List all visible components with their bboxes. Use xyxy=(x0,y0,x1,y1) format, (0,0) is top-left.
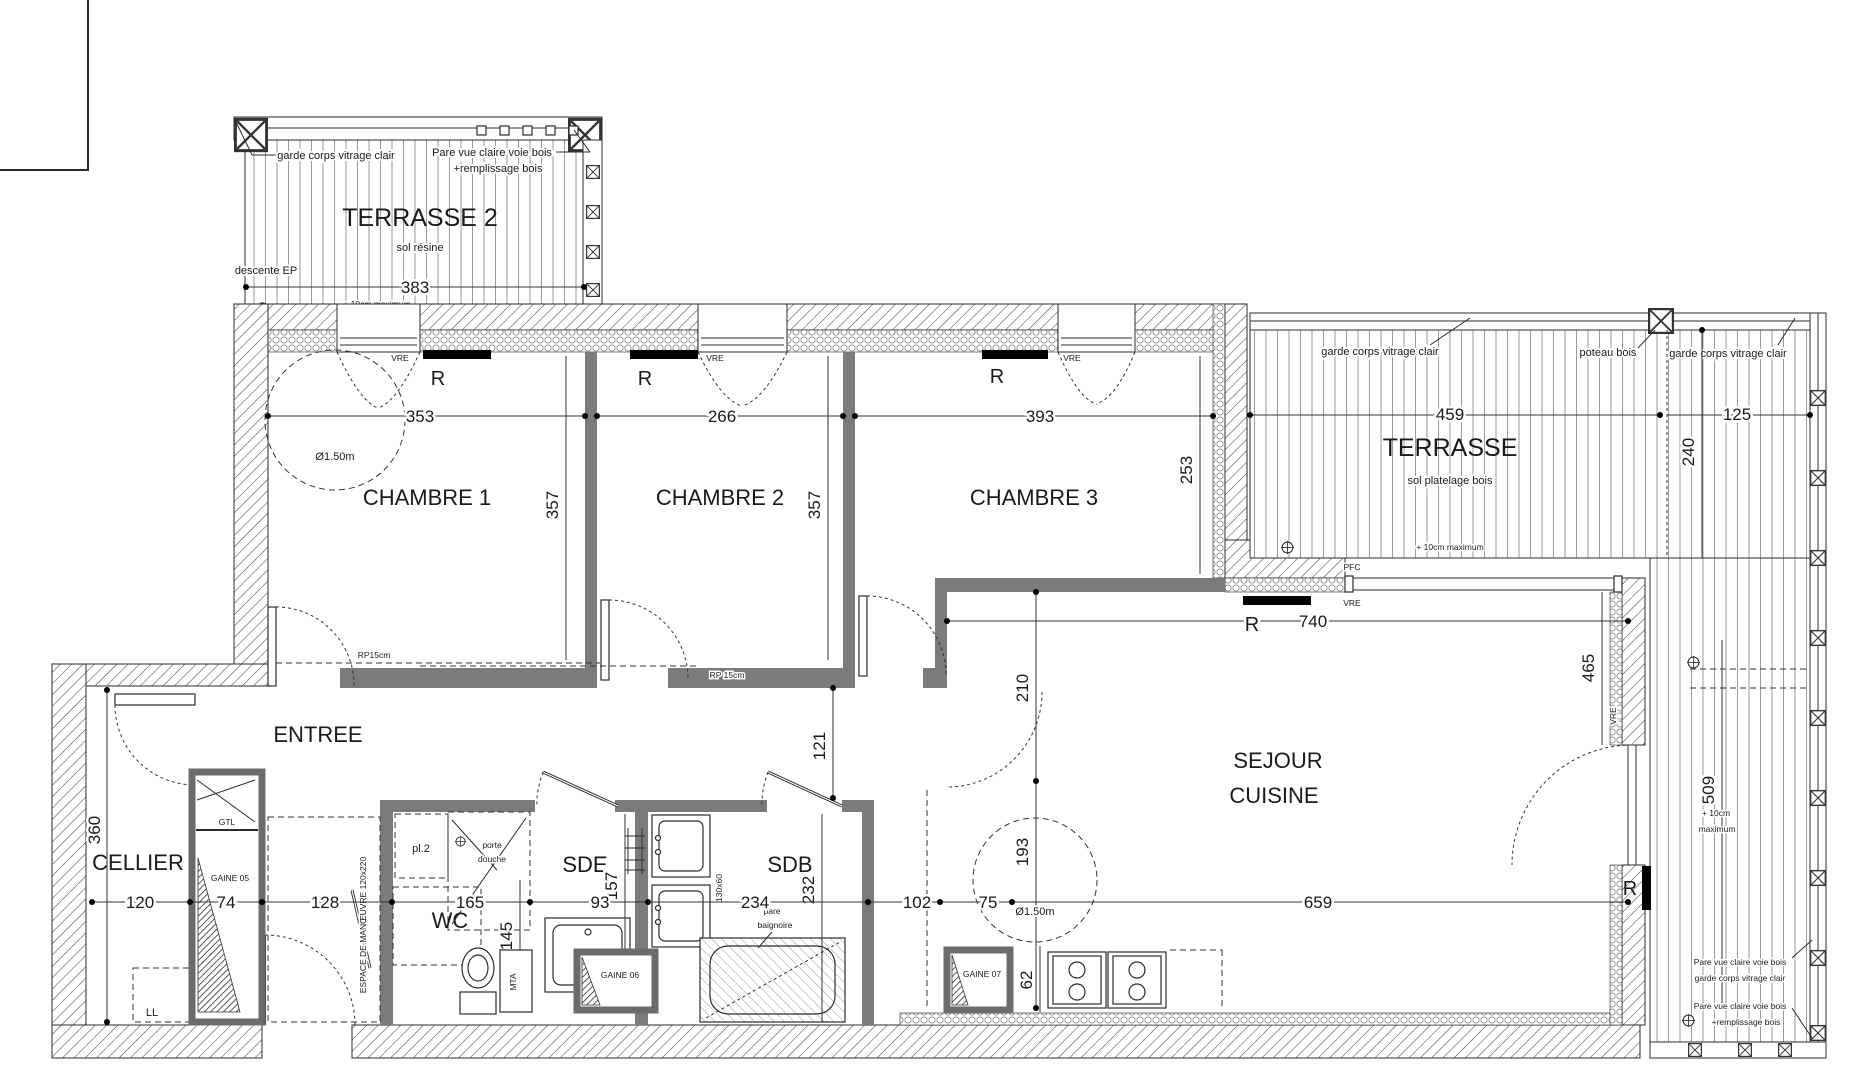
room-chambre1: Ø1.50m 353 CHAMBRE 1 357 xyxy=(265,350,588,660)
annotation-pfc: PFC xyxy=(1344,562,1361,572)
radiator-sejour-north xyxy=(1243,596,1311,605)
dim-terrasse-width: 459 xyxy=(1436,405,1464,424)
dim-terrasse2-width: 383 xyxy=(401,278,429,297)
annotation-rp15: RP15cm xyxy=(358,650,391,660)
dim-terrace-strip-depth: 509 xyxy=(1699,776,1718,804)
sejour-label1: SEJOUR xyxy=(1233,748,1322,773)
radiator-r-ch3: R xyxy=(990,366,1004,388)
dim-sejour-bay: 740 xyxy=(1299,612,1327,631)
door-cellier xyxy=(115,694,195,785)
mta-label: MTA xyxy=(508,973,518,991)
dim-chain-6: 102 xyxy=(903,893,931,912)
dim-chain-1: 74 xyxy=(217,893,236,912)
terrasse-floor-label: sol platelage bois xyxy=(1407,475,1493,487)
dim-chambre3-depth: 253 xyxy=(1177,456,1196,484)
pl2-label: pl.2 xyxy=(412,843,430,855)
door-terrasse-east xyxy=(1512,745,1636,865)
dim-wc-depth: 145 xyxy=(497,922,516,950)
circle-label-ch1: Ø1.50m xyxy=(315,451,354,463)
gaine07: GAINE 07 xyxy=(947,950,1010,1010)
annotation-garde-corps-t2: garde corps vitrage clair xyxy=(277,150,395,162)
dimension-chain: 120 74 128 165 93 234 102 75 659 xyxy=(89,893,1631,912)
dim-chain-4: 93 xyxy=(591,893,610,912)
ll-label: LL xyxy=(146,1007,158,1019)
terrasse-label: TERRASSE xyxy=(1383,434,1518,462)
dim-chain-8: 659 xyxy=(1304,893,1332,912)
sdb-label: SDB xyxy=(767,852,812,877)
sde-label: SDE xyxy=(562,852,607,877)
gaine06-label: GAINE 06 xyxy=(601,970,640,980)
gtl-label: GTL xyxy=(219,817,236,827)
kitchen-units xyxy=(1048,952,1166,1008)
annotation-pare-vue-t2: Pare vue claire voie bois xyxy=(432,147,552,159)
dim-chain-5: 234 xyxy=(741,893,769,912)
dim-sdb-depth: 232 xyxy=(799,876,818,904)
radiator-chambre1 xyxy=(423,350,491,359)
radiator-r-ch2: R xyxy=(638,368,652,390)
door-sejour xyxy=(947,692,1042,787)
espace-manoeuvre: ESPACE DE MANŒUVRE 120x220 xyxy=(268,817,380,1022)
annotation-max10a-strip: + 10cm xyxy=(1702,808,1730,818)
dim-chain-3: 165 xyxy=(456,893,484,912)
room-chambre2: 266 CHAMBRE 2 357 xyxy=(594,356,846,660)
annotation-poteau-bois: poteau bois xyxy=(1580,347,1637,359)
radiators-north: R R R xyxy=(423,350,1048,390)
chambre3-label: CHAMBRE 3 xyxy=(970,485,1098,510)
closet-pl2: pl.2 xyxy=(395,814,448,878)
mta-box: MTA xyxy=(500,950,532,1012)
dim-chain-7: 75 xyxy=(979,893,998,912)
annotation-garde-corps-right: garde corps vitrage clair xyxy=(1669,348,1787,360)
dim-chambre1-depth: 357 xyxy=(543,491,562,519)
vre-label-w2: VRE xyxy=(706,353,724,363)
annotation-remplissage-right: +remplissage bois xyxy=(1712,1017,1781,1027)
dim-terrasse-side-width: 125 xyxy=(1723,405,1751,424)
dim-sejour-door: 465 xyxy=(1579,654,1598,682)
vre-label-w1: VRE xyxy=(391,353,409,363)
circle-label-sejour: Ø1.50m xyxy=(1015,906,1054,918)
vre-label-bay: VRE xyxy=(1343,598,1361,608)
annotation-garde-corps-terrasse: garde corps vitrage clair xyxy=(1321,346,1439,358)
dim-chambre2-depth: 357 xyxy=(805,491,824,519)
dim-chambre3-width: 393 xyxy=(1026,407,1054,426)
annotation-pare-vue-right2: Pare vue claire voie bois xyxy=(1694,1001,1787,1011)
vre-label-w3: VRE xyxy=(1063,353,1081,363)
dim-chambre2-width: 266 xyxy=(708,407,736,426)
gaine07-label: GAINE 07 xyxy=(963,969,1002,979)
floor-plan-page: garde corps vitrage clair Pare vue clair… xyxy=(0,0,1871,1080)
porte-douche-label1: porte xyxy=(482,840,502,850)
room-terrasse2: garde corps vitrage clair Pare vue clair… xyxy=(234,117,602,315)
chambre2-label: CHAMBRE 2 xyxy=(656,485,784,510)
room-chambre3: 393 CHAMBRE 3 253 xyxy=(852,356,1216,574)
room-sdb: SDB 130x60 pare baignoire 232 xyxy=(652,814,845,1022)
chambre1-label: CHAMBRE 1 xyxy=(363,485,491,510)
radiator-r-east: R xyxy=(1623,878,1637,900)
dim-chain-0: 120 xyxy=(126,893,154,912)
pare-baignoire-label2: baignoire xyxy=(758,920,793,930)
dim-corridor: 121 xyxy=(810,732,829,760)
radiator-r-sejour: R xyxy=(1245,614,1259,636)
porte-douche-label2: douche xyxy=(478,854,506,864)
door-chambre3 xyxy=(859,596,946,676)
annotation-remplissage-t2: +remplissage bois xyxy=(454,163,543,175)
sejour-label2: CUISINE xyxy=(1229,783,1318,808)
vre-label-east: VRE xyxy=(1608,707,1618,725)
dim-sejour-h2: 193 xyxy=(1013,838,1032,866)
terrasse2-label: TERRASSE 2 xyxy=(342,204,498,232)
espace-label: ESPACE DE MANŒUVRE 120x220 xyxy=(358,857,368,994)
annotation-descente-ep: descente EP xyxy=(235,265,297,277)
floor-plan: garde corps vitrage clair Pare vue clair… xyxy=(0,0,1871,1080)
room-terrasse: garde corps vitrage clair poteau bois ga… xyxy=(1247,309,1826,1058)
door-sdb xyxy=(762,772,842,806)
terrasse2-side-rail xyxy=(583,140,602,304)
door-entrance xyxy=(265,935,355,1025)
annotation-rp15b: RP 15cm xyxy=(710,670,745,680)
dim-terrasse-side-depth: 240 xyxy=(1679,438,1698,466)
terrasse2-floor-label: sol résine xyxy=(396,242,443,254)
door-sde xyxy=(537,772,618,806)
dim-cellier-depth: 360 xyxy=(85,816,104,844)
radiator-r-ch1: R xyxy=(431,368,445,390)
bathtub xyxy=(700,938,845,1022)
gaine06: GAINE 06 xyxy=(577,952,655,1010)
gaine05-label: GAINE 05 xyxy=(211,873,250,883)
dim-gaine7-h: 62 xyxy=(1017,971,1036,990)
annotation-max10-terrasse: + 10cm maximum xyxy=(1416,542,1483,552)
annotation-pare-vue-right1: Pare vue claire voie bois xyxy=(1694,957,1787,967)
radiator-chambre2 xyxy=(630,350,698,359)
annotation-max10b-strip: maximum xyxy=(1699,824,1736,834)
radiator-chambre3 xyxy=(982,350,1048,359)
annotation-garde-corps-right2: garde corps vitrage clair xyxy=(1695,973,1786,983)
cellier-label: CELLIER xyxy=(92,850,184,875)
bay-window-sejour: VRE xyxy=(1343,576,1622,608)
vanity-size-label: 130x60 xyxy=(714,874,724,902)
dim-sejour-h1: 210 xyxy=(1013,674,1032,702)
dim-chain-2: 128 xyxy=(311,893,339,912)
dim-chambre1-width: 353 xyxy=(406,407,434,426)
washing-machine-slot xyxy=(133,968,190,1022)
entree-label: ENTREE xyxy=(273,722,362,747)
adjacent-structure-line xyxy=(0,0,88,170)
